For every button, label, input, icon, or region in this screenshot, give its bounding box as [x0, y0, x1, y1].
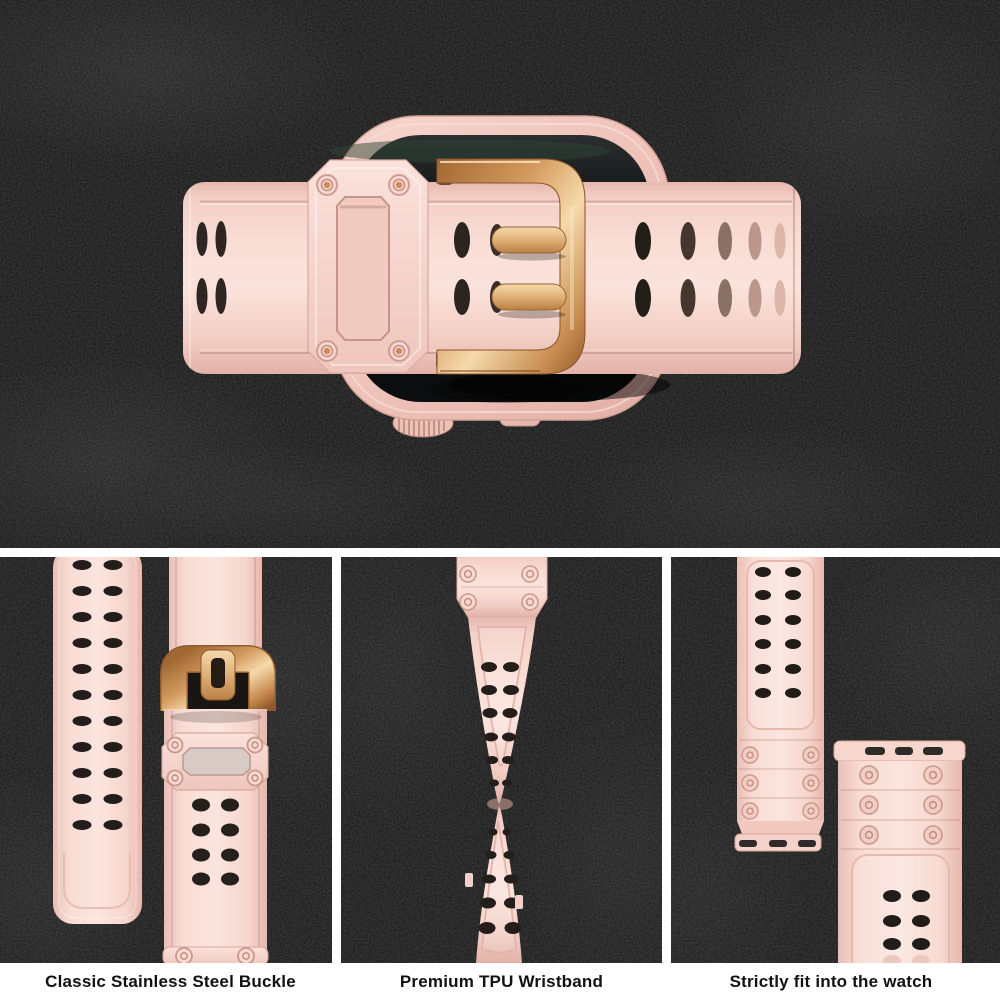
edge-tab: [465, 873, 473, 887]
edge-tab: [515, 895, 523, 909]
panel-buckle-photo: [0, 557, 332, 963]
buckle-top-view: [169, 557, 262, 711]
hero-watch-illustration: [0, 0, 1000, 548]
strap-with-holes: [53, 557, 142, 924]
connector-closeup-illustration: [671, 557, 1000, 963]
panel-wristband-photo: [341, 557, 662, 963]
watch-connector-left: [735, 821, 824, 851]
strap-end-left: [735, 557, 824, 851]
buckle-closeup-illustration: [0, 557, 332, 963]
second-keeper-edge: [163, 947, 268, 963]
strap-end-right: [834, 741, 965, 963]
caption-buckle: Classic Stainless Steel Buckle: [0, 963, 341, 1000]
caption-bar: Classic Stainless Steel Buckle Premium T…: [0, 963, 1000, 1000]
product-collage: Classic Stainless Steel Buckle Premium T…: [0, 0, 1000, 1000]
band-connector-end: [457, 557, 547, 617]
keeper-closeup: [162, 733, 268, 790]
watch-connector-right: [834, 741, 965, 761]
caption-wristband: Premium TPU Wristband: [341, 963, 662, 1000]
buckle-shadow: [430, 377, 580, 403]
wristband: [183, 182, 801, 374]
twist-fold: [487, 798, 513, 810]
hero-photo: [0, 0, 1000, 548]
panel-fit-photo: [671, 557, 1000, 963]
detail-panels: [0, 548, 1000, 963]
caption-fit: Strictly fit into the watch: [662, 963, 1000, 1000]
wristband-twist-illustration: [341, 557, 662, 963]
